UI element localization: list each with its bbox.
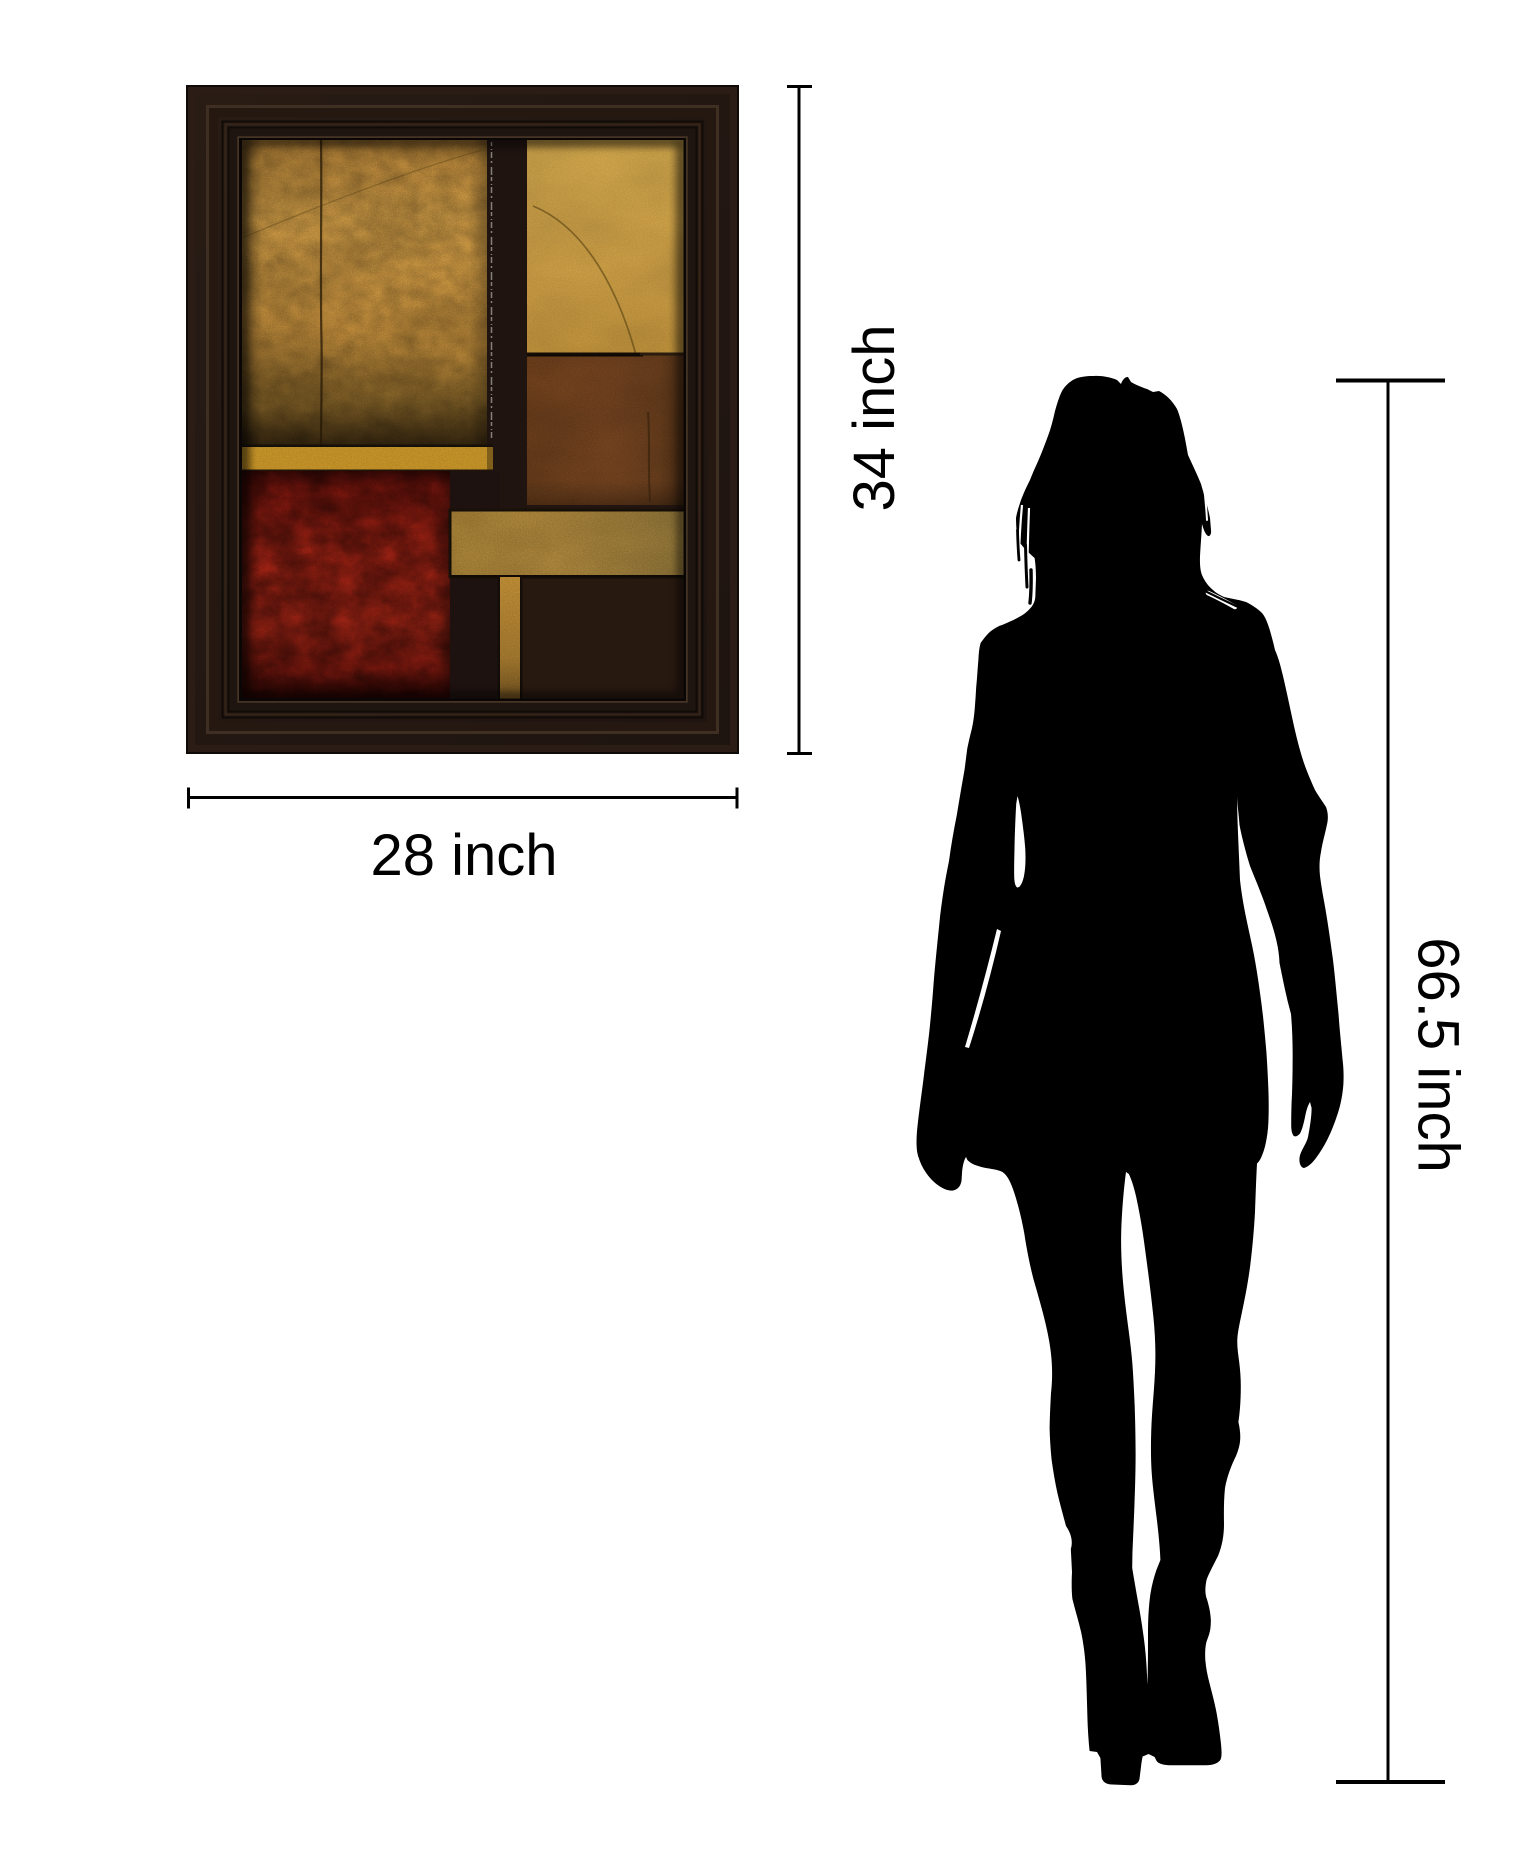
svg-text:28 inch: 28 inch bbox=[370, 823, 557, 888]
svg-text:34 inch: 34 inch bbox=[842, 324, 907, 511]
svg-text:66.5 inch: 66.5 inch bbox=[1406, 937, 1471, 1172]
